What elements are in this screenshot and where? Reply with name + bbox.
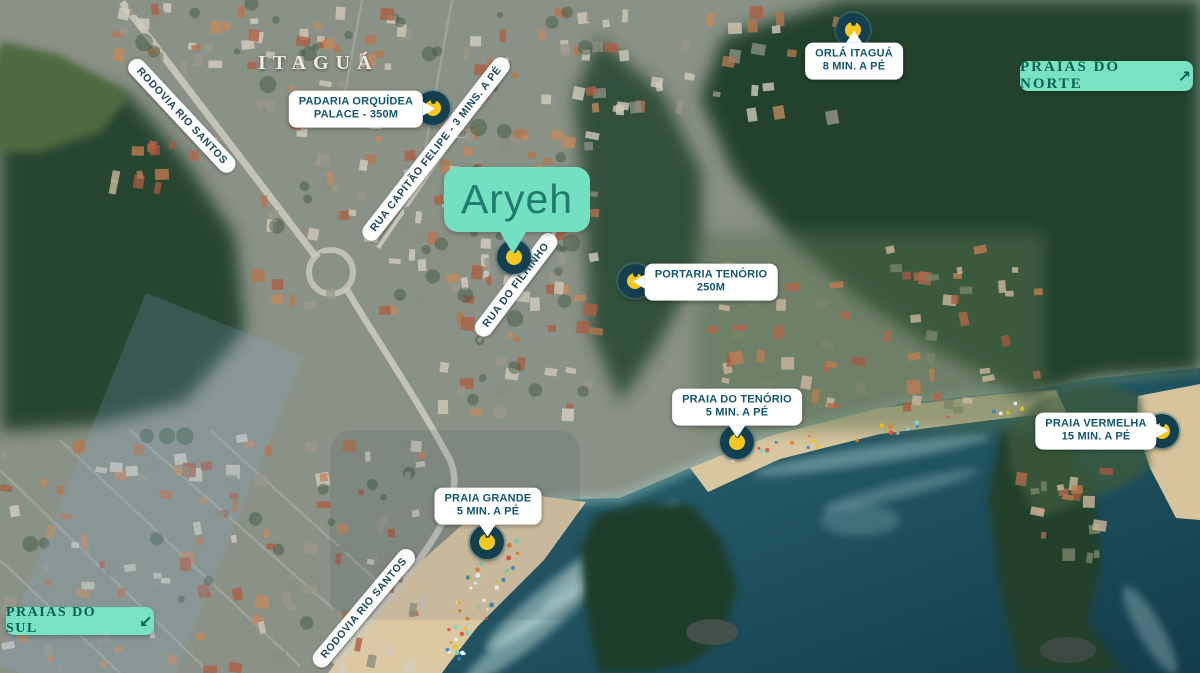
poi-distance: 5 MIN. A PÉ (445, 506, 532, 519)
poi-name: ORLÁ ITAGUÁ (815, 48, 893, 61)
poi-label-praia-grande: PRAIA GRANDE 5 MIN. A PÉ (435, 488, 542, 525)
poi-name: PRAIA GRANDE (445, 493, 532, 506)
district-label: ITAGUÁ (258, 52, 379, 75)
label-pointer (423, 102, 435, 116)
poi-distance: 8 MIN. A PÉ (815, 61, 893, 74)
property-name: Aryeh (461, 176, 573, 223)
poi-label-orla-itagua: ORLÁ ITAGUÁ 8 MIN. A PÉ (805, 43, 903, 80)
button-label: PRAIAS DO NORTE (1020, 59, 1169, 93)
bubble-pointer (500, 232, 526, 254)
poi-name: PRAIA DO TENÓRIO (682, 394, 792, 407)
poi-distance: PALACE - 350M (299, 109, 413, 122)
property-bubble-aryeh: Aryeh (444, 167, 590, 232)
poi-label-portaria-tenorio: PORTARIA TENÓRIO 250M (645, 264, 778, 301)
label-pointer (729, 425, 745, 437)
pin-notch-icon (851, 21, 856, 26)
poi-label-padaria-orquidea: PADARIA ORQUÍDEA PALACE - 350M (289, 91, 423, 128)
poi-label-praia-vermelha: PRAIA VERMELHA 15 MIN. A PÉ (1035, 413, 1156, 450)
poi-name: PORTARIA TENÓRIO (655, 269, 768, 282)
button-label: PRAIAS DO SUL (6, 605, 130, 637)
poi-distance: 5 MIN. A PÉ (682, 407, 792, 420)
label-pointer (846, 31, 862, 43)
label-pointer (633, 275, 645, 289)
poi-distance: 250M (655, 282, 768, 295)
arrow-up-right-icon: ↗ (1178, 67, 1193, 86)
label-pointer (480, 524, 496, 536)
poi-distance: 15 MIN. A PÉ (1045, 431, 1146, 444)
praias-do-norte-button[interactable]: PRAIAS DO NORTE ↗ (1020, 61, 1193, 91)
praias-do-sul-button[interactable]: PRAIAS DO SUL ↙ (6, 607, 154, 635)
arrow-down-left-icon: ↙ (139, 612, 154, 631)
label-pointer (1157, 424, 1169, 438)
poi-name: PRAIA VERMELHA (1045, 418, 1146, 431)
poi-name: PADARIA ORQUÍDEA (299, 96, 413, 109)
location-map: ITAGUÁ RODOVIA RIO SANTOS RUA CAPITÃO FE… (0, 0, 1200, 673)
poi-label-praia-do-tenorio: PRAIA DO TENÓRIO 5 MIN. A PÉ (672, 389, 802, 426)
